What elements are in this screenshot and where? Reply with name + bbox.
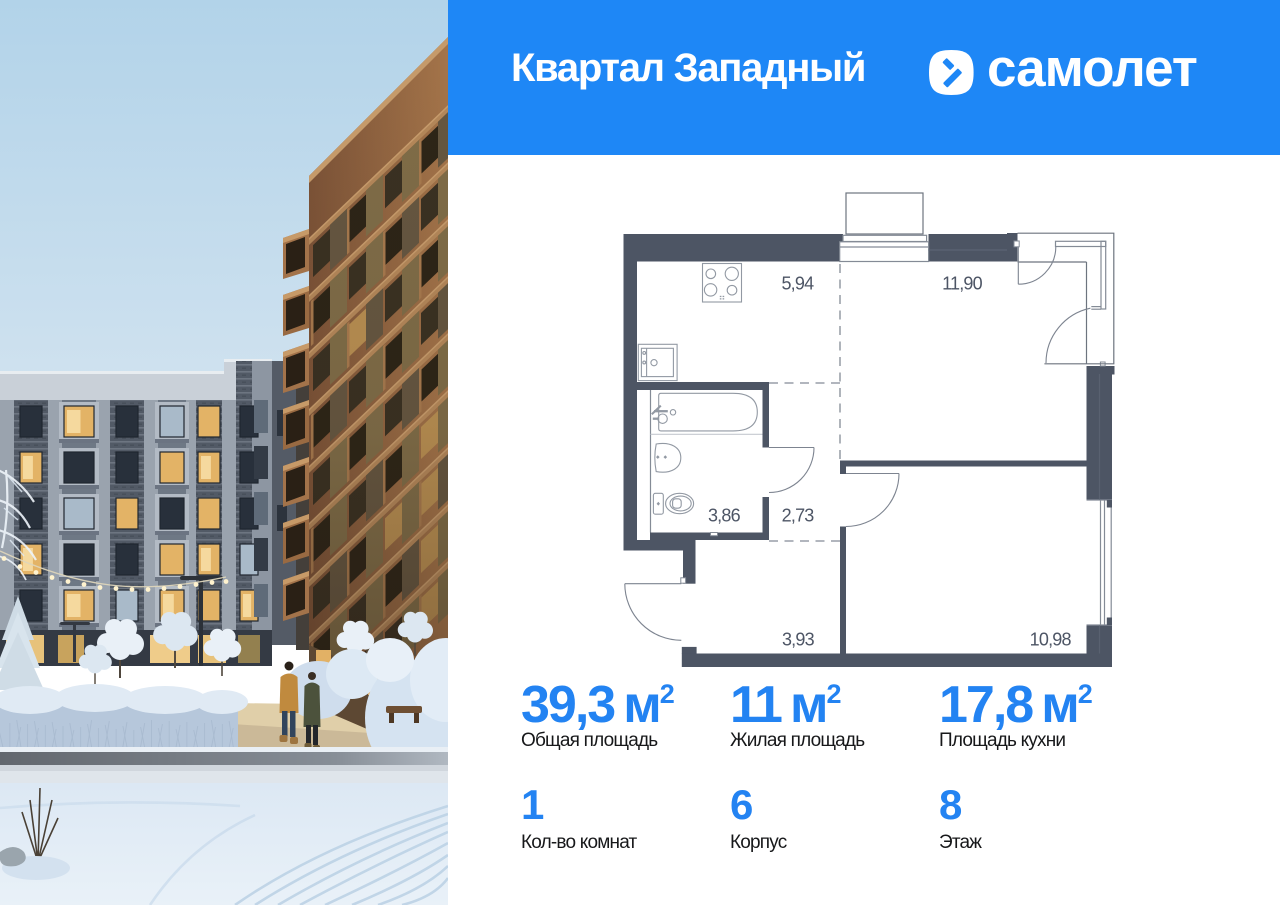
svg-text:2,73: 2,73 xyxy=(782,506,815,526)
svg-text:5,94: 5,94 xyxy=(781,274,814,294)
svg-text:3,86: 3,86 xyxy=(708,506,741,526)
svg-text:10,98: 10,98 xyxy=(1030,630,1072,650)
svg-text:11,90: 11,90 xyxy=(942,274,982,294)
svg-text:3,93: 3,93 xyxy=(782,630,815,650)
